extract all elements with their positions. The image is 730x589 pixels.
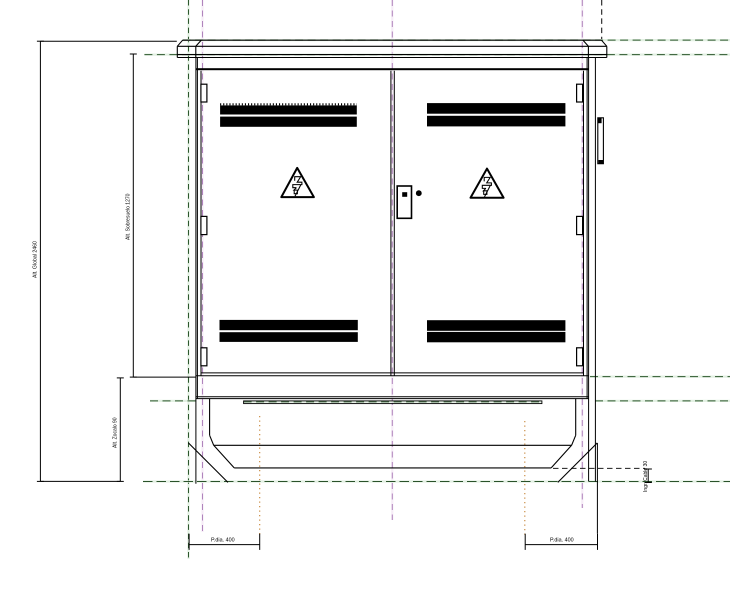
svg-text:Alt. Zocalo 90: Alt. Zocalo 90 [113,417,119,448]
svg-text:Alt. Global 2460: Alt. Global 2460 [33,241,39,278]
svg-text:Alt. Sobresuelo 1270: Alt. Sobresuelo 1270 [126,193,132,240]
svg-text:Ingr. Cable 30: Ingr. Cable 30 [643,461,649,492]
svg-text:P.dia. 400: P.dia. 400 [550,538,574,544]
svg-text:P.dia. 400: P.dia. 400 [211,538,235,544]
